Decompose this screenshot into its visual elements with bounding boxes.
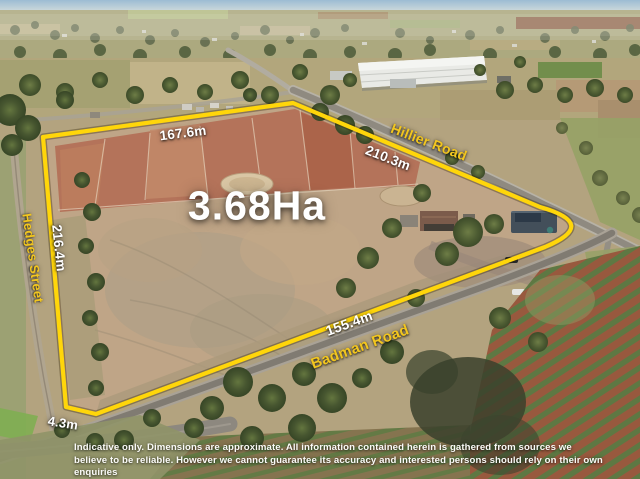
aerial-photo-artwork xyxy=(0,0,640,479)
haze-overlay xyxy=(0,14,640,36)
area-label: 3.68Ha xyxy=(188,183,326,230)
disclaimer-line-1: Indicative only. Dimensions are approxim… xyxy=(74,442,640,455)
disclaimer-line-2: believe to be reliable. However we canno… xyxy=(74,455,640,479)
disclaimer-text: Indicative only. Dimensions are approxim… xyxy=(74,442,640,479)
property-aerial-photo: 3.68Ha 167.6m Hillier Road 210.3m 216.4m… xyxy=(0,0,640,479)
